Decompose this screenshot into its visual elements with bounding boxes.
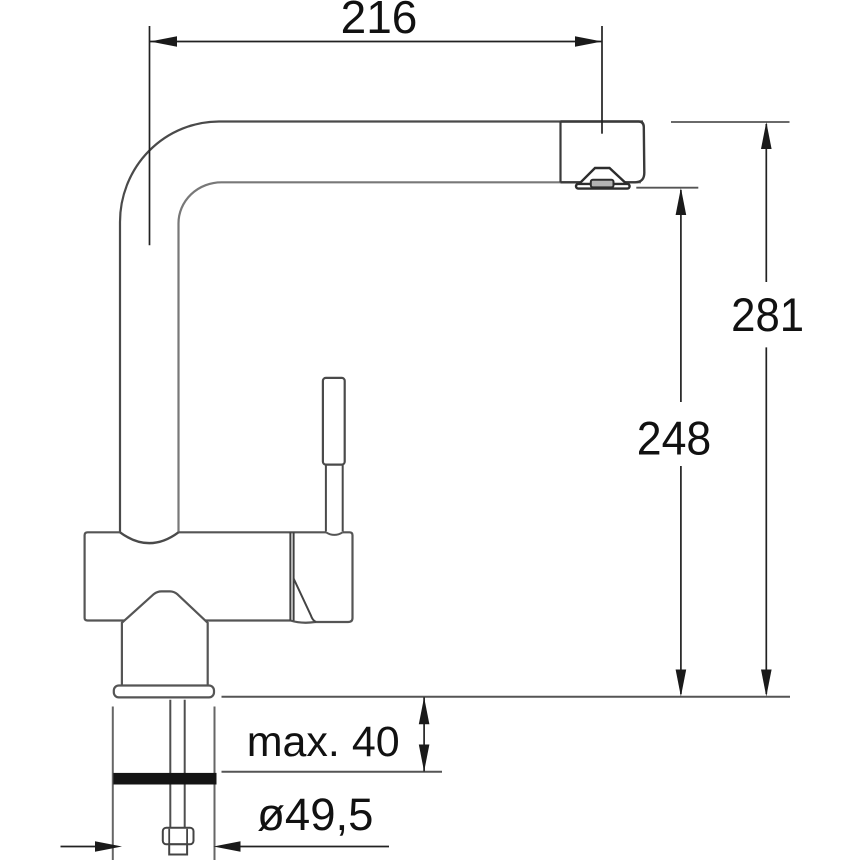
svg-text:216: 216 xyxy=(341,0,418,43)
svg-text:ø49,5: ø49,5 xyxy=(257,789,373,840)
svg-text:281: 281 xyxy=(731,288,804,341)
svg-text:248: 248 xyxy=(637,412,711,464)
svg-text:max. 40: max. 40 xyxy=(247,718,400,766)
